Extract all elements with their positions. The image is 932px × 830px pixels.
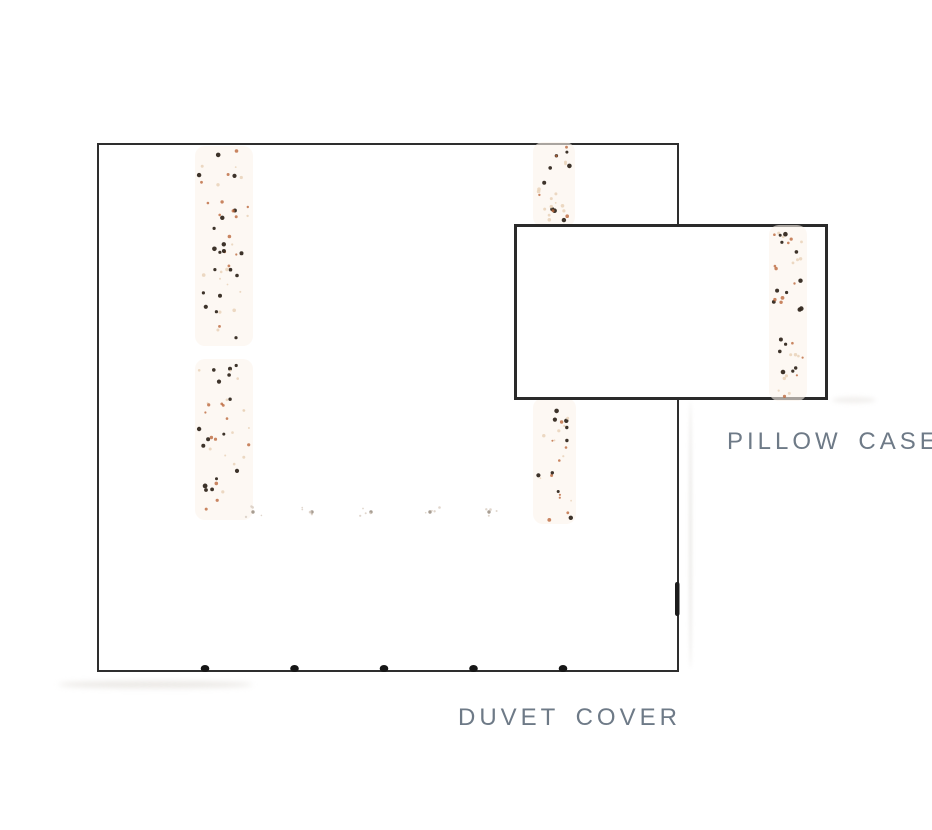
duvet-cover-label: DUVET COVER — [458, 706, 681, 730]
duvet-cover-shape — [97, 143, 679, 672]
pillow-case-shape — [514, 224, 828, 400]
shadow-smudge — [689, 402, 692, 668]
shadow-smudge — [58, 681, 253, 688]
pillow-case-label: PILLOW CASE — [727, 430, 932, 454]
bedding-diagram: DUVET COVER PILLOW CASE — [0, 0, 932, 830]
shadow-smudge — [832, 397, 876, 403]
